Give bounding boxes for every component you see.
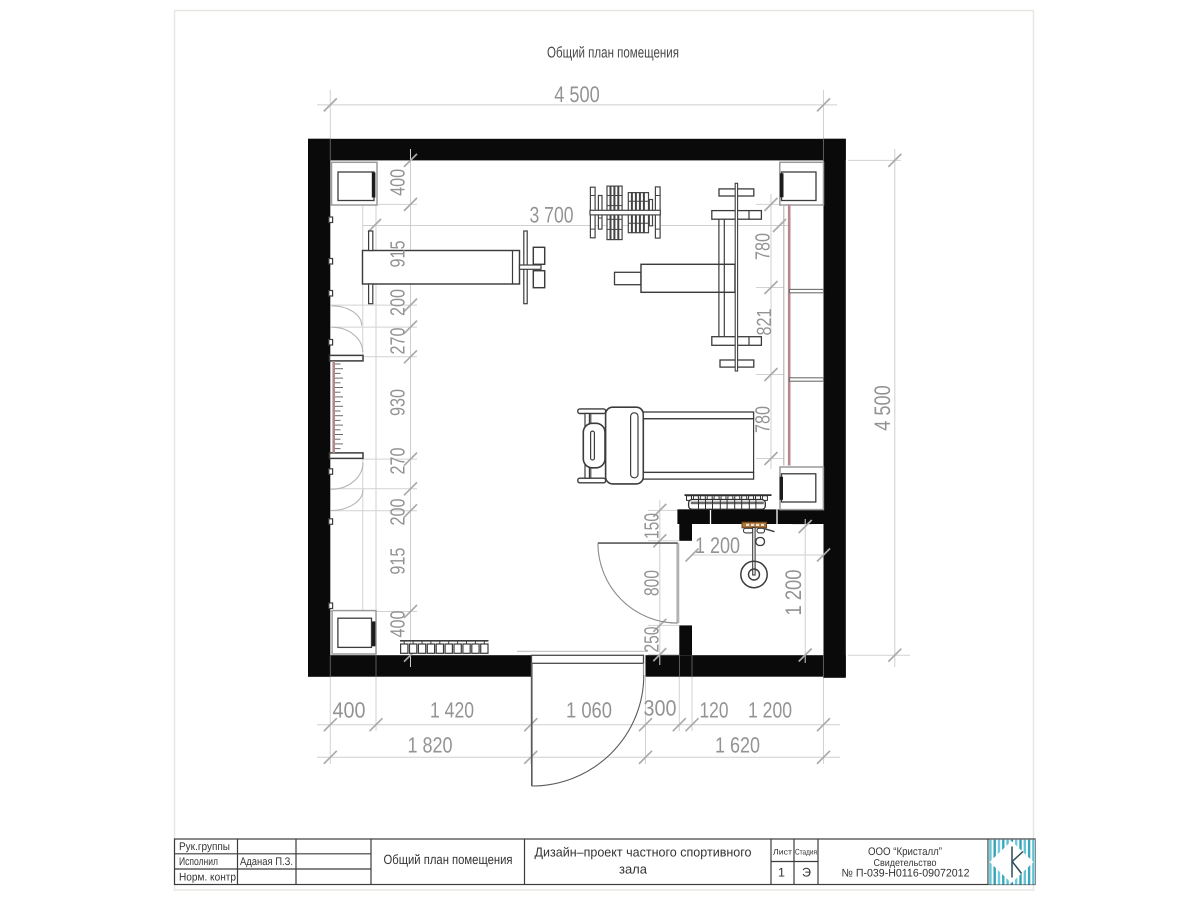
svg-text:1 820: 1 820: [408, 733, 453, 758]
svg-text:1 200: 1 200: [748, 698, 792, 723]
svg-text:400: 400: [387, 169, 410, 196]
svg-text:270: 270: [387, 328, 410, 355]
svg-text:1 620: 1 620: [715, 733, 760, 758]
svg-text:270: 270: [387, 448, 410, 475]
svg-text:Общий план помещения: Общий план помещения: [547, 45, 679, 62]
svg-text:зала: зала: [619, 862, 648, 877]
svg-text:Э: Э: [802, 866, 811, 880]
svg-text:1 420: 1 420: [430, 698, 474, 723]
svg-text:Стадия: Стадия: [795, 848, 817, 857]
svg-text:400: 400: [387, 611, 410, 638]
svg-text:ООО “Кристалл”: ООО “Кристалл”: [868, 846, 942, 858]
svg-text:4 500: 4 500: [554, 82, 600, 107]
svg-text:Норм. контр: Норм. контр: [179, 871, 236, 883]
svg-text:Исполнил: Исполнил: [179, 856, 218, 868]
svg-text:780: 780: [752, 406, 775, 433]
svg-text:800: 800: [641, 570, 664, 596]
svg-text:№ П-039-Н0116-09072012: № П-039-Н0116-09072012: [842, 868, 970, 880]
svg-text:150: 150: [641, 513, 664, 539]
svg-text:821: 821: [753, 309, 776, 336]
svg-text:400: 400: [333, 698, 366, 723]
svg-text:200: 200: [387, 499, 410, 526]
svg-text:Лист: Лист: [773, 848, 792, 857]
svg-text:Аданая П.З.: Аданая П.З.: [240, 856, 293, 868]
svg-text:3 700: 3 700: [530, 203, 574, 228]
svg-text:250: 250: [641, 627, 664, 653]
svg-text:930: 930: [387, 389, 410, 416]
svg-text:300: 300: [644, 696, 677, 721]
svg-text:915: 915: [387, 548, 410, 575]
svg-text:Дизайн–проект частного спортив: Дизайн–проект частного спортивного: [535, 845, 752, 860]
svg-text:120: 120: [700, 698, 729, 723]
svg-text:Рук.группы: Рук.группы: [179, 841, 230, 853]
svg-text:4 500: 4 500: [870, 385, 895, 431]
svg-text:1 200: 1 200: [781, 570, 806, 616]
svg-text:1: 1: [778, 866, 785, 880]
svg-text:Общий план помещения: Общий план помещения: [384, 852, 513, 867]
svg-text:780: 780: [752, 233, 775, 260]
svg-text:915: 915: [387, 241, 410, 268]
svg-text:200: 200: [387, 289, 410, 316]
svg-text:1 060: 1 060: [566, 698, 612, 723]
svg-text:1 200: 1 200: [695, 533, 740, 558]
